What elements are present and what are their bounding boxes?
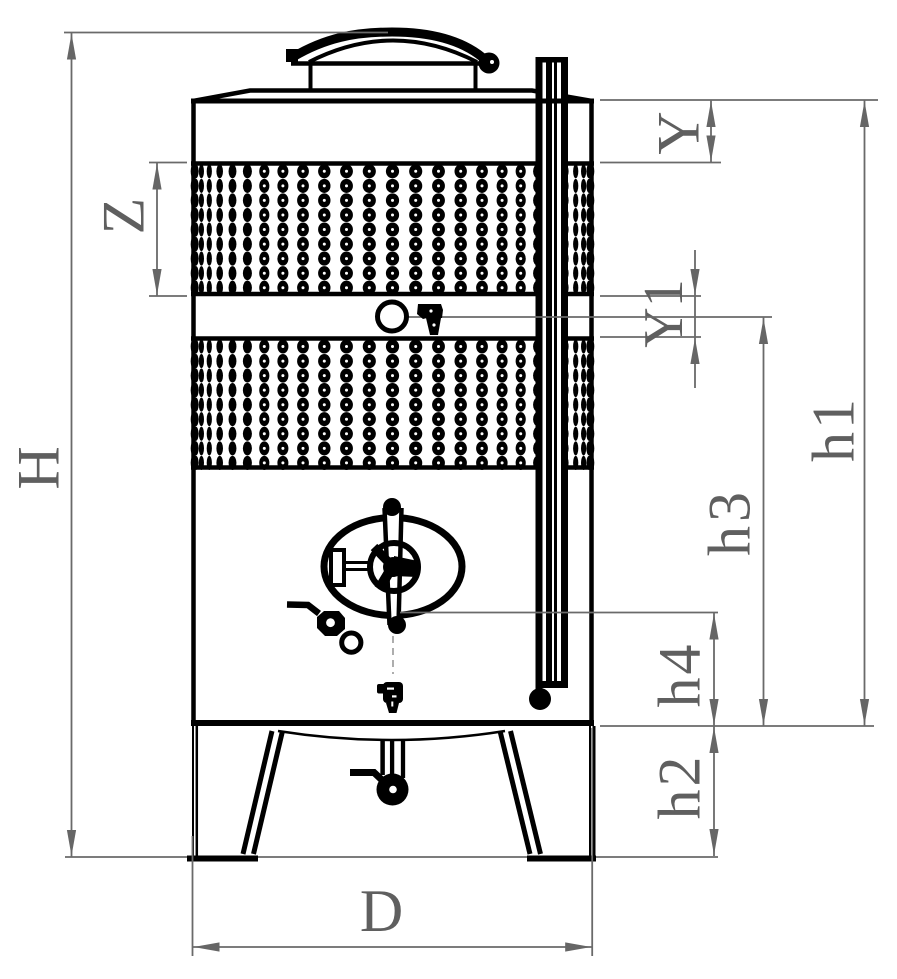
svg-text:Y1: Y1	[633, 279, 695, 347]
svg-text:h4: h4	[647, 642, 713, 708]
svg-text:Y: Y	[646, 111, 712, 154]
svg-text:h2: h2	[647, 754, 713, 820]
svg-text:D: D	[360, 878, 403, 944]
svg-text:h1: h1	[801, 396, 867, 462]
svg-text:h3: h3	[697, 488, 763, 556]
svg-text:H: H	[6, 446, 72, 489]
svg-text:Z: Z	[91, 198, 157, 235]
